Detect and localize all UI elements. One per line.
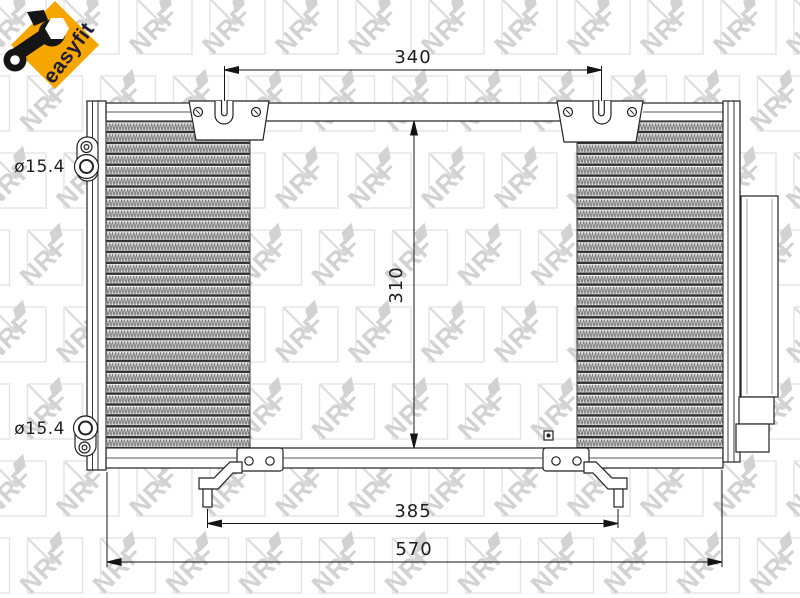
lower-port-diameter-label: ø15.4 — [14, 419, 65, 439]
clip-tab — [544, 431, 553, 440]
top-left-mounting-bracket — [189, 100, 269, 140]
upper-port-diameter-label: ø15.4 — [14, 157, 65, 177]
dim-label-570: 570 — [395, 539, 432, 560]
left-core-fins — [106, 121, 250, 448]
lower-port-fitting — [74, 416, 98, 456]
top-right-mounting-bracket — [557, 100, 643, 142]
dim-label-385: 385 — [394, 501, 431, 522]
upper-port-fitting — [75, 137, 99, 181]
right-core-fins — [577, 121, 723, 448]
dim-label-310: 310 — [386, 266, 407, 303]
dim-label-340: 340 — [394, 47, 431, 68]
product-technical-drawing-page: NRF — [0, 0, 800, 598]
receiver-drier — [736, 196, 778, 452]
bottom-header-bar — [106, 448, 723, 468]
condenser-drawing-canvas: NRF — [0, 0, 800, 598]
right-tank — [723, 101, 740, 462]
